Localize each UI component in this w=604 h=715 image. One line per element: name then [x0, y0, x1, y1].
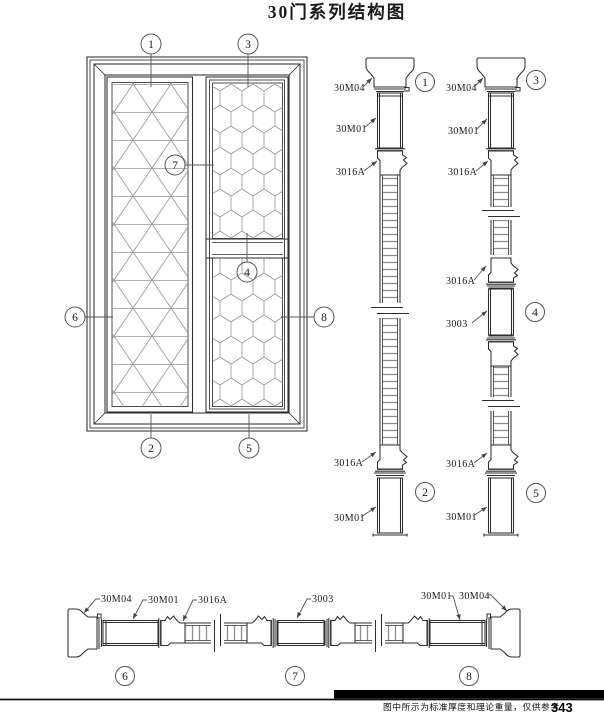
- right-glass-bottom: [213, 258, 283, 407]
- part-label-30m01: 30M01: [148, 595, 179, 606]
- part-label-30m01: 30M01: [421, 591, 452, 602]
- callout-5: 5: [239, 438, 259, 458]
- callout-2-section: 2: [416, 483, 435, 502]
- callout-3-section: 3: [527, 71, 546, 90]
- left-glass-lattice: [112, 83, 188, 407]
- diagram-page: 30门系列结构图: [0, 0, 604, 715]
- svg-text:7: 7: [172, 160, 178, 172]
- svg-text:1: 1: [422, 77, 428, 89]
- svg-text:8: 8: [321, 312, 327, 324]
- callout-6-section: 6: [116, 667, 135, 686]
- part-label-3016a: 3016A: [336, 167, 366, 178]
- part-label-30m04: 30M04: [459, 591, 490, 602]
- part-label-30m01: 30M01: [334, 513, 365, 524]
- page-title: 30门系列结构图: [268, 2, 407, 22]
- callout-8-section: 8: [460, 667, 479, 686]
- callout-1: 1: [141, 34, 161, 54]
- svg-text:7: 7: [292, 671, 298, 683]
- callout-5-section: 5: [527, 484, 546, 503]
- svg-text:6: 6: [72, 312, 78, 324]
- svg-text:2: 2: [148, 443, 154, 455]
- part-label-3016a: 3016A: [198, 595, 228, 606]
- callout-8: 8: [314, 307, 334, 327]
- part-label-30m01: 30M01: [446, 512, 477, 523]
- svg-text:4: 4: [532, 307, 538, 319]
- callout-6: 6: [65, 307, 85, 327]
- footer-bar: [334, 690, 604, 699]
- part-label-30m04: 30M04: [101, 594, 132, 605]
- svg-text:5: 5: [533, 488, 539, 500]
- part-label-3003: 3003: [312, 594, 334, 605]
- part-label-3016a: 3016A: [446, 459, 476, 470]
- svg-text:5: 5: [246, 443, 252, 455]
- callout-7-section: 7: [286, 667, 305, 686]
- right-glass-top: [213, 83, 283, 239]
- svg-text:1: 1: [148, 39, 154, 51]
- door-elevation: [87, 57, 307, 431]
- page-number: 343: [551, 700, 573, 715]
- horizontal-section: [68, 609, 520, 657]
- svg-text:8: 8: [466, 671, 472, 683]
- svg-text:3: 3: [245, 39, 251, 51]
- callout-3: 3: [238, 34, 258, 54]
- part-label-30m01: 30M01: [336, 124, 367, 135]
- part-label-3016a: 3016A: [334, 458, 364, 469]
- callout-2: 2: [141, 438, 161, 458]
- svg-text:6: 6: [122, 671, 128, 683]
- part-label-30m04: 30M04: [334, 83, 365, 94]
- part-label-30m01: 30M01: [448, 126, 479, 137]
- footer: 图中所示为标准厚度和理论重量，仅供参考 343: [0, 690, 604, 715]
- footer-note: 图中所示为标准厚度和理论重量，仅供参考: [383, 701, 560, 712]
- svg-text:4: 4: [244, 267, 250, 279]
- svg-text:2: 2: [422, 487, 428, 499]
- vertical-section-right: [477, 58, 525, 537]
- callout-4-section: 4: [526, 303, 545, 322]
- structure-diagram: 30门系列结构图: [0, 0, 604, 715]
- callout-1-section: 1: [416, 73, 435, 92]
- part-label-3003: 3003: [446, 319, 468, 330]
- left-sash: [107, 77, 193, 412]
- part-label-3016a: 3016A: [446, 276, 476, 287]
- part-label-30m04: 30M04: [446, 83, 477, 94]
- part-label-3016a: 3016A: [448, 167, 478, 178]
- svg-text:3: 3: [533, 75, 539, 87]
